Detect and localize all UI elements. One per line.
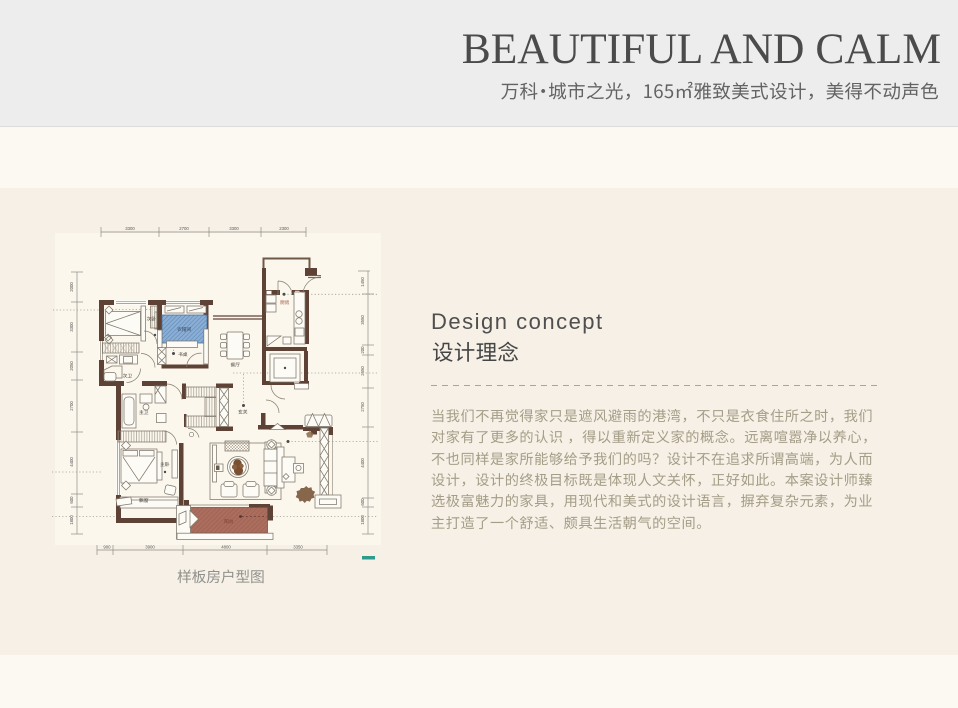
svg-text:厨房: 厨房 <box>280 299 290 306</box>
svg-text:主卫: 主卫 <box>139 409 149 416</box>
svg-text:2700: 2700 <box>179 226 189 231</box>
svg-text:书桌: 书桌 <box>178 351 188 358</box>
svg-text:衣帽间: 衣帽间 <box>177 326 192 333</box>
svg-text:飘窗: 飘窗 <box>139 497 149 504</box>
svg-text:3350: 3350 <box>293 545 303 550</box>
svg-text:4400: 4400 <box>360 458 365 468</box>
svg-text:2000: 2000 <box>69 282 74 292</box>
svg-text:900: 900 <box>103 545 111 550</box>
svg-text:阳台: 阳台 <box>224 518 234 525</box>
svg-text:600: 600 <box>69 496 74 504</box>
svg-text:次卧: 次卧 <box>147 316 157 323</box>
svg-text:2650: 2650 <box>360 366 365 376</box>
svg-text:次卫: 次卫 <box>123 373 133 380</box>
svg-text:玄关: 玄关 <box>238 409 248 416</box>
svg-text:2750: 2750 <box>360 402 365 412</box>
svg-text:餐厅: 餐厅 <box>231 362 241 369</box>
svg-text:200: 200 <box>360 346 365 354</box>
svg-text:2700: 2700 <box>69 401 74 411</box>
svg-text:3300: 3300 <box>69 322 74 332</box>
svg-text:3900: 3900 <box>145 545 155 550</box>
svg-text:3550: 3550 <box>360 315 365 325</box>
svg-text:4800: 4800 <box>221 545 231 550</box>
svg-text:600: 600 <box>360 498 365 506</box>
svg-text:2050: 2050 <box>69 361 74 371</box>
svg-text:3300: 3300 <box>125 226 135 231</box>
svg-text:2300: 2300 <box>279 226 289 231</box>
svg-text:1450: 1450 <box>360 277 365 287</box>
svg-text:4400: 4400 <box>69 457 74 467</box>
svg-text:3300: 3300 <box>229 226 239 231</box>
svg-text:主卧: 主卧 <box>160 461 170 468</box>
